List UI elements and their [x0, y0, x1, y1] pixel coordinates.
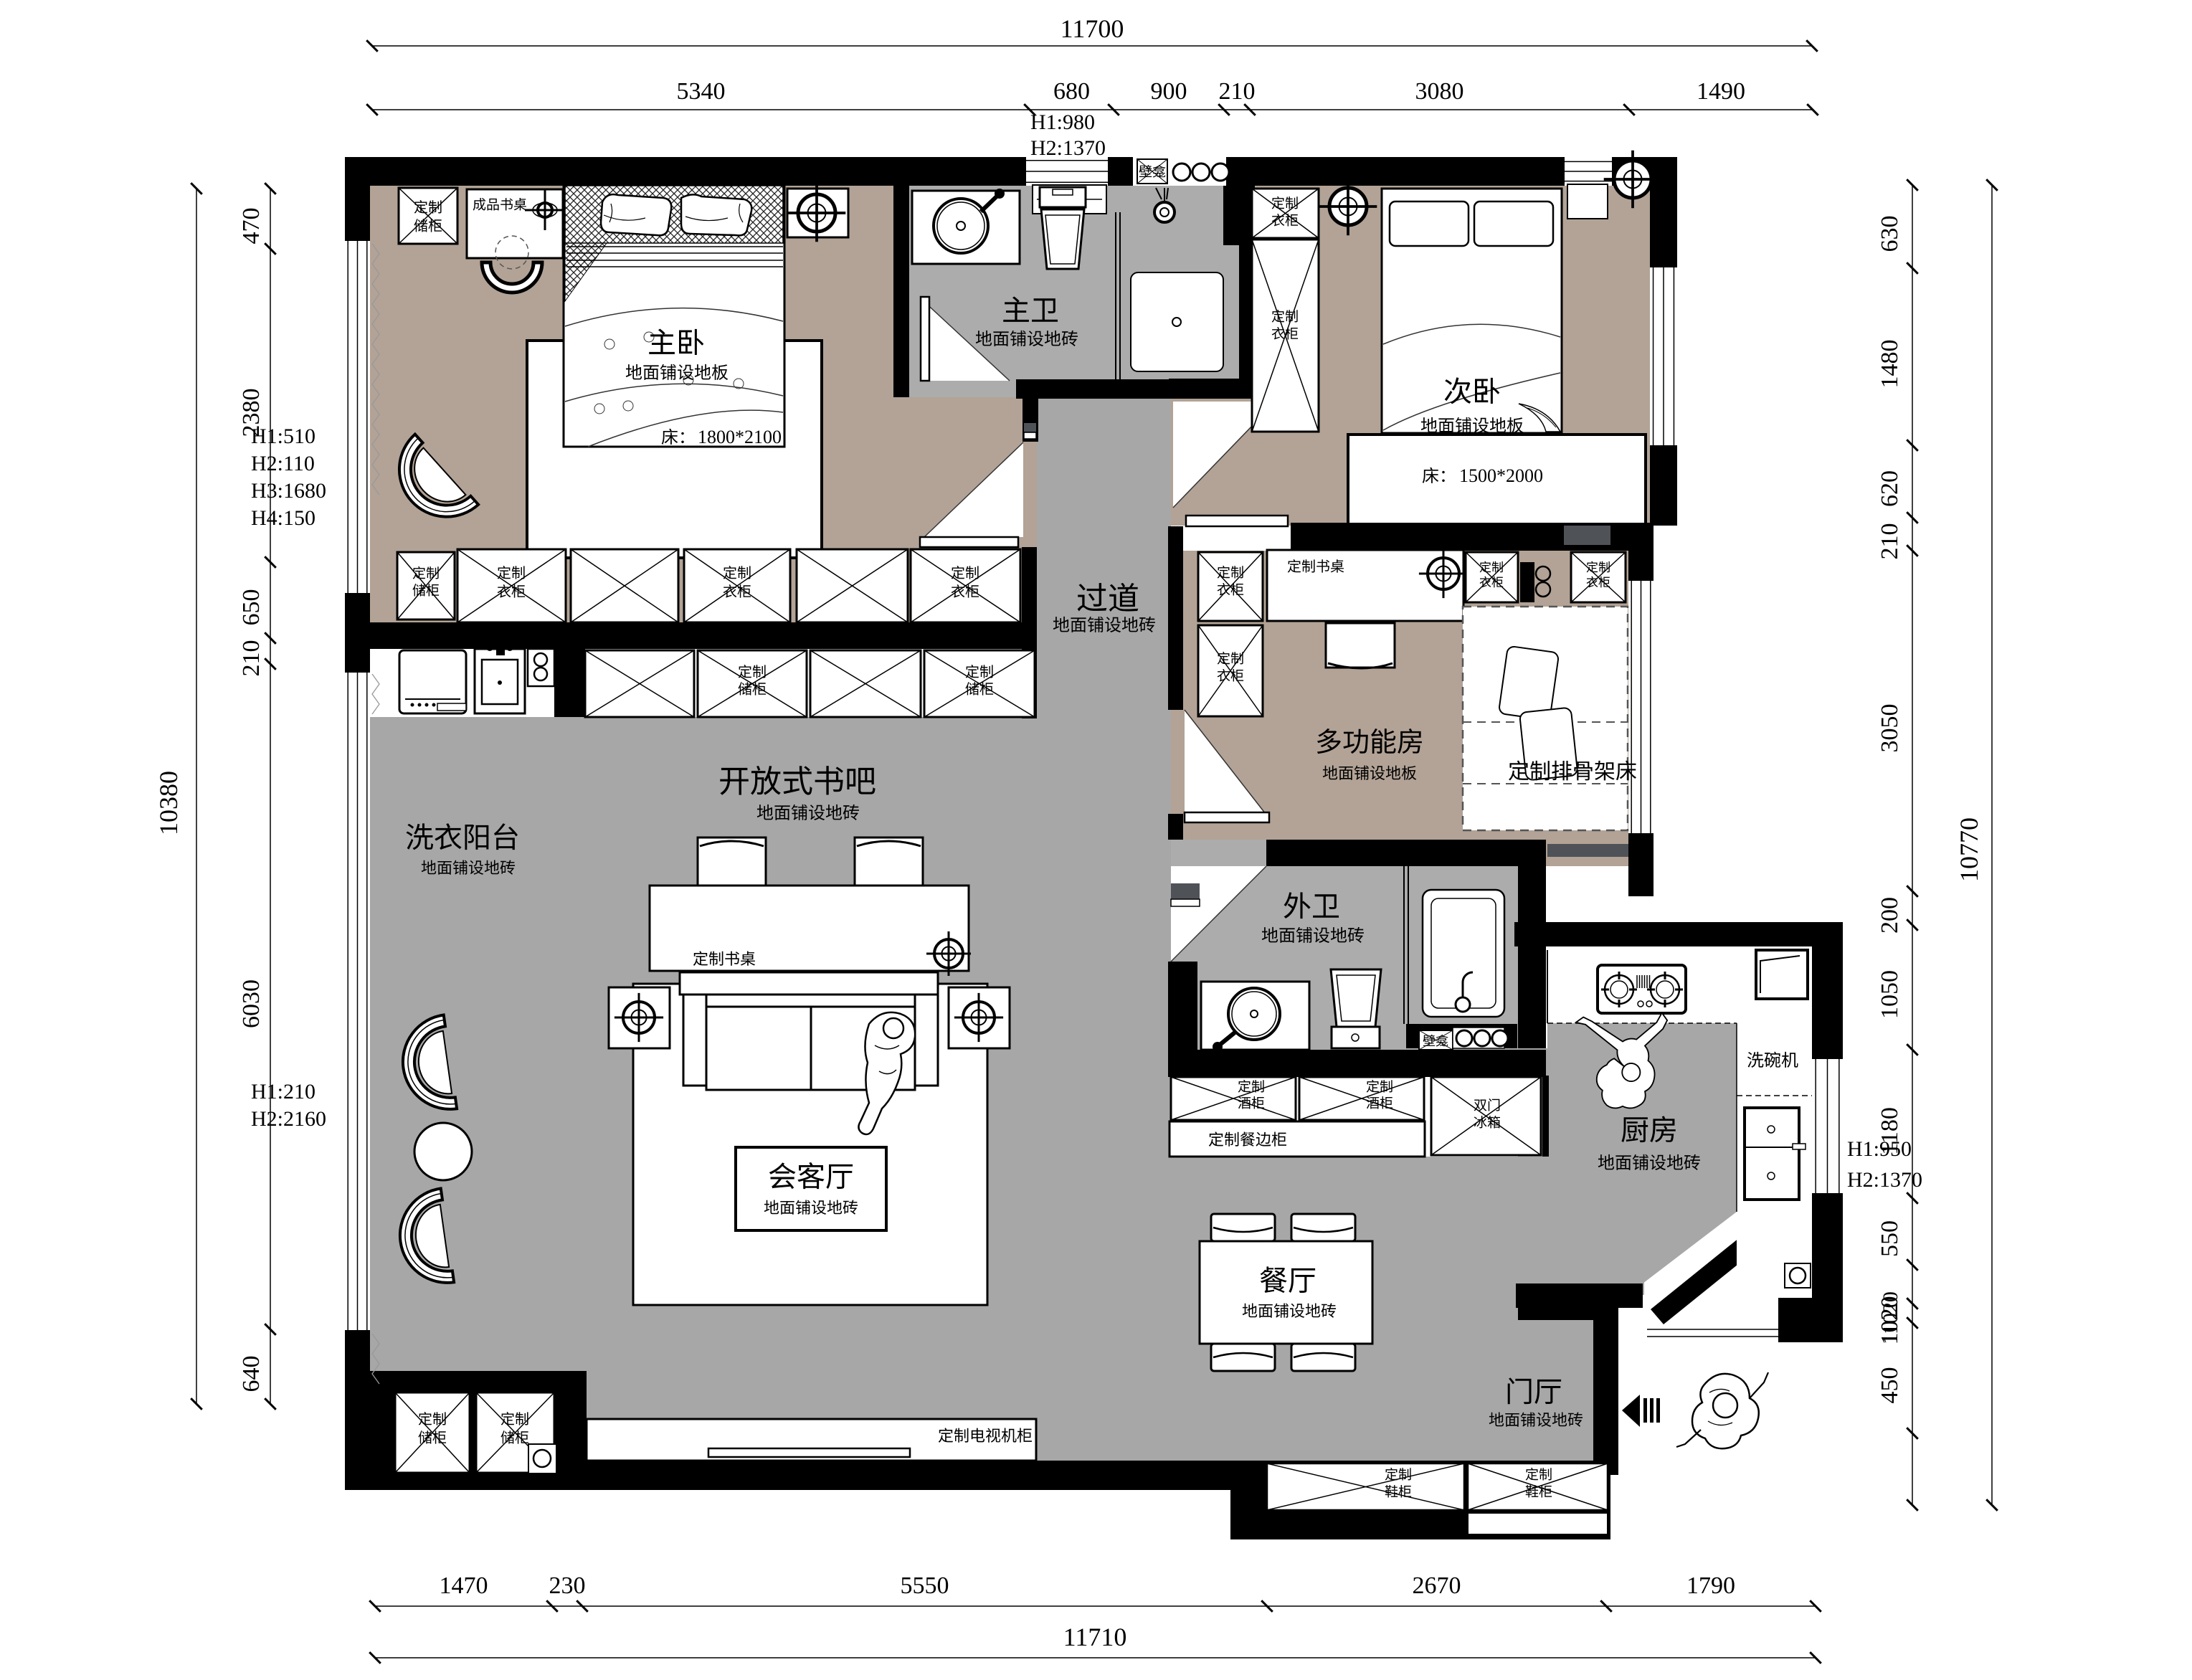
- svg-text:1790: 1790: [1686, 1572, 1735, 1599]
- svg-text:11700: 11700: [1061, 14, 1124, 43]
- svg-text:550: 550: [1877, 1220, 1903, 1257]
- svg-text:H2:110: H2:110: [251, 452, 315, 475]
- svg-text:H3:1680: H3:1680: [251, 479, 326, 503]
- svg-text:1500*2000: 1500*2000: [1459, 465, 1543, 486]
- svg-text:1050: 1050: [1877, 970, 1903, 1019]
- svg-text:11710: 11710: [1063, 1623, 1127, 1651]
- svg-text:3050: 3050: [1877, 704, 1903, 753]
- svg-text:1470: 1470: [440, 1572, 488, 1599]
- svg-text:3080: 3080: [1415, 78, 1464, 105]
- svg-text:620: 620: [1877, 470, 1903, 507]
- svg-text:11020: 11020: [1879, 1291, 1902, 1344]
- svg-text:H2:2160: H2:2160: [251, 1107, 326, 1131]
- svg-text:H4:150: H4:150: [251, 506, 315, 530]
- svg-text:H1:980: H1:980: [1030, 110, 1095, 134]
- svg-text:2670: 2670: [1413, 1572, 1461, 1599]
- svg-text:1800*2100: 1800*2100: [698, 427, 782, 447]
- svg-text:640: 640: [238, 1356, 265, 1392]
- svg-text:H2:1370: H2:1370: [1030, 136, 1106, 160]
- svg-text:630: 630: [1877, 216, 1903, 252]
- svg-text:H1:950: H1:950: [1847, 1137, 1912, 1161]
- svg-text:1490: 1490: [1697, 78, 1745, 105]
- svg-text:H1:510: H1:510: [251, 424, 315, 448]
- svg-text:900: 900: [1151, 78, 1187, 105]
- svg-text:450: 450: [1877, 1367, 1903, 1404]
- svg-text:200: 200: [1877, 897, 1903, 934]
- svg-text:210: 210: [238, 640, 265, 677]
- svg-text:5340: 5340: [677, 78, 726, 105]
- svg-text:H1:210: H1:210: [251, 1080, 315, 1104]
- svg-text:10770: 10770: [1955, 817, 1983, 882]
- svg-text:210: 210: [1877, 523, 1903, 560]
- svg-text:1480: 1480: [1877, 340, 1903, 389]
- svg-text:680: 680: [1053, 78, 1090, 105]
- svg-text:470: 470: [238, 208, 265, 245]
- svg-text:H2:1370: H2:1370: [1847, 1168, 1922, 1192]
- svg-text:210: 210: [1219, 78, 1256, 105]
- svg-text:5550: 5550: [901, 1572, 949, 1599]
- svg-text:230: 230: [549, 1572, 586, 1599]
- svg-text:10380: 10380: [154, 771, 183, 835]
- svg-text:6030: 6030: [238, 979, 265, 1028]
- svg-text:650: 650: [238, 589, 265, 626]
